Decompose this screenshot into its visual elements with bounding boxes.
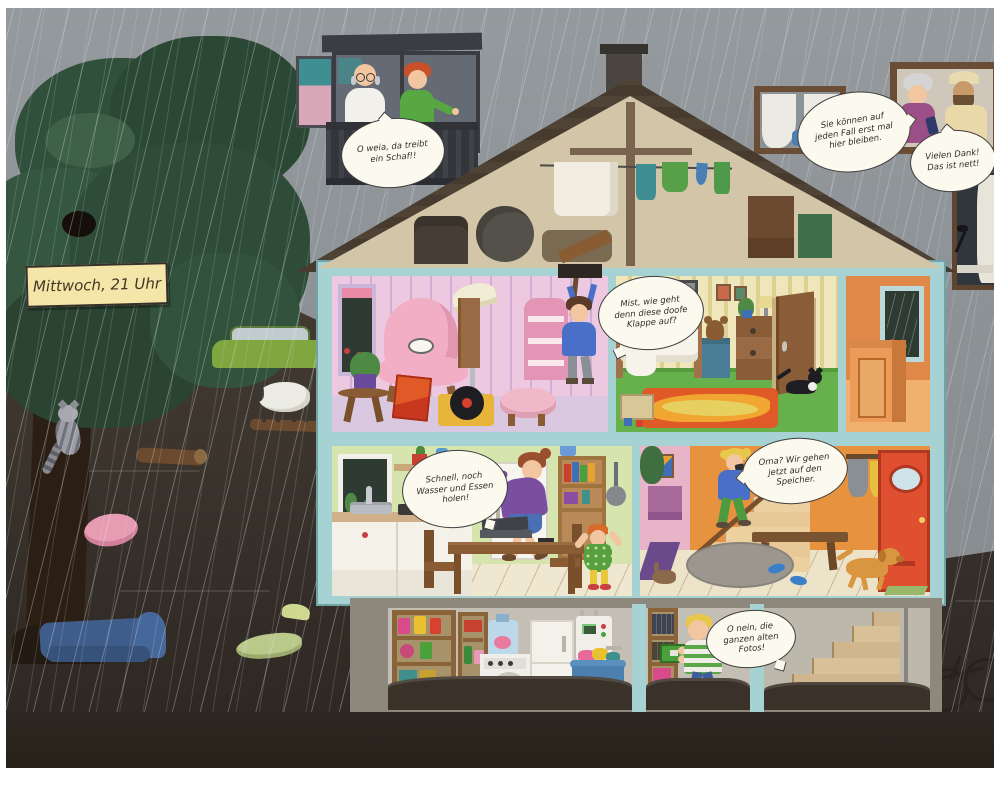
gray-jacket: [848, 459, 868, 497]
curtain: [762, 94, 796, 148]
attic-hatch-opening: [558, 264, 602, 278]
attic-kingpost: [626, 102, 635, 266]
hanging-pan: [606, 486, 626, 506]
cellar-floodwater: [646, 678, 750, 710]
date-note-text: Mittwoch, 21 Uhr: [33, 274, 162, 295]
attic-crate: [798, 214, 832, 258]
hanging-sheet: [554, 162, 618, 216]
cellar-laundry: [388, 608, 632, 710]
plant-pot-blue: [742, 310, 752, 318]
toddler-arm: [608, 530, 624, 548]
sofa-seat: [46, 646, 150, 662]
doormat: [884, 586, 928, 595]
kitchen-cabinets: [332, 522, 472, 596]
stair-door: [858, 358, 886, 418]
bubble-text: Sie können auf jeden Fall erst mal hier …: [808, 109, 900, 154]
cellar-floodwater: [764, 682, 930, 710]
book: [572, 462, 579, 482]
tree-foliage-highlight: [45, 113, 135, 168]
nightstand: [702, 338, 730, 378]
girl-shoe: [716, 522, 729, 528]
window-valance: [342, 288, 372, 298]
bubble-text: O weia, da treibt ein Schaf!!: [353, 139, 433, 167]
bench-leg: [827, 542, 838, 571]
girl-head: [570, 304, 588, 322]
table-leg: [568, 554, 575, 594]
chair-seat: [550, 558, 580, 567]
pouf-leg: [538, 414, 545, 426]
book: [582, 490, 590, 504]
page-margin: [0, 768, 1000, 800]
faucet: [366, 486, 372, 504]
side-table-top: [338, 388, 390, 398]
balcony-awning: [322, 33, 482, 53]
toddler-shoe: [588, 584, 599, 590]
dresser: [736, 316, 772, 380]
chair-seat: [424, 562, 454, 571]
closet-door: [458, 298, 480, 368]
door-porthole: [889, 465, 923, 493]
grandpa-glasses: [356, 73, 365, 82]
cat-chest: [808, 382, 817, 391]
hanging-shirt: [662, 162, 688, 192]
sheep-leg: [304, 408, 308, 422]
girl-leg: [580, 355, 592, 380]
girl-leg: [568, 356, 577, 380]
grandpa-hair: [375, 76, 380, 85]
desk-lamp: [955, 231, 967, 252]
cabinet-divider: [396, 522, 398, 596]
toy-block: [636, 420, 643, 427]
mother-bun: [540, 448, 551, 459]
boy-head: [688, 620, 708, 640]
cat-on-tree: [42, 405, 92, 477]
book-stack: [564, 492, 578, 504]
shelf-board: [528, 360, 564, 366]
floating-log: [136, 448, 208, 466]
grandpa-glasses: [366, 73, 375, 82]
page-margin: [0, 0, 6, 800]
girl-sweater: [562, 322, 596, 356]
game-board: [620, 394, 654, 420]
desk-lamp-head: [957, 225, 968, 232]
bubble-text: Oma? Wir gehen jetzt auf den Speicher.: [754, 452, 836, 491]
shelf-board: [528, 338, 564, 344]
hanging-sock: [695, 163, 708, 186]
attic-dresser: [748, 196, 794, 258]
book: [564, 464, 571, 482]
hanging-pants: [714, 162, 730, 194]
illustration-scene: Mittwoch, 21 Uhr O weia, da treibt ein S…: [0, 0, 1000, 800]
stair-enclosure: [850, 340, 906, 422]
toddler-shoe: [600, 584, 611, 590]
hall-plant: [640, 446, 664, 484]
bubble-text: Mist, wie geht denn diese doofe Klappe a…: [610, 294, 692, 333]
date-note: Mittwoch, 21 Uhr: [25, 262, 168, 308]
grandpa-hair: [351, 76, 356, 85]
table-lamp-stem: [764, 308, 768, 316]
sheep-on-raft: [248, 376, 328, 434]
star-jar: [560, 446, 576, 456]
cellar-post: [632, 604, 646, 714]
girl-shoe: [738, 520, 751, 526]
floating-sofa: [40, 612, 170, 676]
attic-chest: [414, 216, 468, 264]
boy-hand: [452, 108, 459, 115]
floating-car: [212, 326, 334, 372]
log-end: [194, 449, 207, 464]
chair-back: [424, 530, 434, 588]
girl-shoe: [582, 378, 594, 384]
laptop-base: [480, 530, 532, 538]
grandma-head: [908, 85, 927, 104]
page-margin: [0, 0, 1000, 8]
water-ripple: [955, 600, 995, 602]
toddler-dress: [584, 544, 612, 572]
bubble-text: Vielen Dank! Das ist nett!: [922, 148, 984, 174]
pan-handle: [614, 462, 618, 486]
dresser-knob: [750, 350, 756, 356]
toy-block: [624, 418, 632, 426]
bunny-ear: [654, 562, 659, 573]
hall-sideboard: [648, 486, 682, 520]
pink-room: [332, 276, 608, 432]
shelf-board: [528, 316, 564, 322]
chimney-cap: [600, 44, 648, 54]
car-body: [212, 340, 334, 368]
girl-shoe: [566, 378, 578, 384]
painting-leaning: [392, 374, 432, 422]
upper-hallway: [846, 276, 930, 432]
book: [588, 463, 595, 482]
glasses-on-chair: [408, 338, 434, 354]
bubble-text: O nein, die ganzen alten Fotos!: [718, 620, 785, 657]
hanging-towel: [636, 164, 656, 200]
bench: [752, 532, 848, 542]
attic-beam: [570, 148, 692, 155]
page-margin: [994, 0, 1000, 800]
desk: [957, 265, 993, 273]
teddy-ear: [720, 316, 728, 324]
record-player: [438, 394, 494, 426]
dog-ear: [878, 550, 886, 562]
mother-shoe: [502, 554, 516, 561]
rolled-mattress: [476, 206, 534, 262]
sheep-leg: [262, 408, 266, 422]
small-frame: [716, 284, 731, 301]
dog-snout: [896, 556, 904, 562]
vinyl-label: [462, 398, 472, 408]
dresser-knob: [750, 328, 756, 334]
bedroom-rug: [642, 388, 778, 428]
teddy-ear: [704, 316, 712, 324]
book: [580, 465, 587, 482]
pouf-leg: [508, 414, 515, 426]
sheep-body: [258, 382, 310, 412]
shelf-board: [562, 508, 602, 512]
boy-head: [408, 70, 427, 89]
blanket-drape: [626, 354, 656, 376]
door-knob: [919, 517, 925, 523]
cellar-floodwater: [388, 676, 632, 710]
bubble-text: Schnell, noch Wasser und Essen holen!: [414, 470, 496, 509]
flower: [344, 348, 350, 354]
cabinet-knob: [362, 532, 368, 538]
foreground-water: [0, 712, 1000, 772]
shelf-board: [562, 484, 602, 488]
sheep-head: [248, 384, 264, 402]
door-handle: [782, 341, 787, 352]
tree-hole: [62, 211, 96, 237]
table-leg: [454, 554, 461, 594]
table-top: [448, 542, 584, 554]
